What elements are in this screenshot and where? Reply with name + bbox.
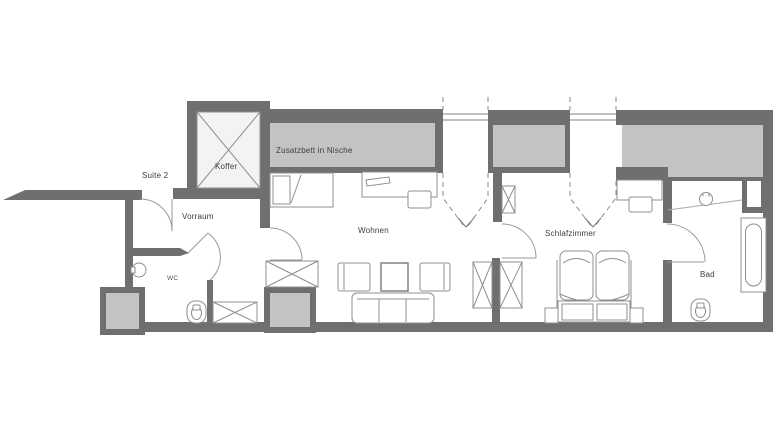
door-bad bbox=[667, 224, 705, 262]
armchair-left bbox=[338, 263, 370, 291]
room-label-koffer: Koffer bbox=[215, 162, 237, 171]
bay1-dash-left bbox=[443, 173, 464, 226]
washbasin-bad-symbol bbox=[700, 193, 713, 206]
shaft-wohnen-fill bbox=[270, 293, 310, 327]
bay1-tip bbox=[458, 218, 474, 227]
bay2-dash-right bbox=[595, 181, 616, 226]
cabinet-schlafzimmer-small bbox=[502, 186, 515, 213]
bay2-tip bbox=[585, 218, 601, 227]
toilet-wc-symbol bbox=[187, 301, 206, 323]
door-wc bbox=[187, 233, 220, 280]
door-entrance bbox=[140, 199, 172, 231]
washbasin-wc-symbol bbox=[131, 263, 146, 277]
floorplan-suite-2: Suite 2 Koffer Zusatzbett in Nische Vorr… bbox=[0, 0, 780, 439]
bathtub-symbol bbox=[741, 218, 766, 292]
wall-top-right-band bbox=[616, 110, 773, 125]
single-bed bbox=[270, 173, 333, 207]
room-label-bad: Bad bbox=[700, 270, 715, 279]
toilet-bad-symbol bbox=[691, 299, 710, 321]
nightstand-left bbox=[545, 308, 558, 323]
wall-koffer-top bbox=[187, 101, 268, 112]
room-label-vorraum: Vorraum bbox=[182, 212, 214, 221]
suite-label: Suite 2 bbox=[142, 171, 168, 180]
desk-chair-wohnen bbox=[408, 191, 431, 208]
wall-bad-top-L bbox=[616, 167, 668, 181]
wall-niche-top bbox=[262, 109, 443, 123]
window-living bbox=[443, 114, 488, 120]
room-label-schlafzimmer: Schlafzimmer bbox=[545, 229, 596, 238]
niche-gray-fill bbox=[270, 123, 435, 167]
double-bed bbox=[545, 251, 643, 323]
nightstand-right bbox=[630, 308, 643, 323]
wall-divide-stub-upper bbox=[493, 172, 502, 222]
wall-corridor bbox=[3, 190, 142, 200]
pier-gray-fill bbox=[493, 125, 565, 167]
wardrobe-divide-left bbox=[473, 262, 492, 308]
bad-niche-inner bbox=[747, 181, 761, 207]
wardrobe-wc-side bbox=[213, 302, 257, 323]
bay1-dash-above bbox=[443, 97, 488, 110]
single-bed-pillow bbox=[273, 176, 290, 204]
wardrobe-wohnen-left bbox=[266, 261, 318, 287]
bay1-dash-right bbox=[468, 173, 488, 226]
desk-schlafzimmer bbox=[617, 180, 662, 212]
room-label-wohnen: Wohnen bbox=[358, 226, 389, 235]
wall-vorraum-left bbox=[125, 198, 133, 287]
bay-tips bbox=[458, 218, 601, 227]
wardrobe-divide-right bbox=[500, 262, 522, 308]
window-bedroom bbox=[570, 114, 616, 120]
bay2-dash-above bbox=[570, 97, 616, 110]
annotation-zusatzbett: Zusatzbett in Nische bbox=[276, 146, 352, 155]
sofa bbox=[352, 293, 434, 323]
wall-niche-right bbox=[435, 123, 443, 173]
wall-divide-lower bbox=[492, 258, 500, 332]
floorplan-drawing bbox=[0, 0, 780, 439]
room-label-wc: WC bbox=[167, 274, 178, 283]
coffee-table bbox=[381, 263, 408, 291]
wall-koffer-bottom bbox=[173, 188, 270, 199]
door-vorraum-wohnen bbox=[270, 228, 302, 260]
wall-bad-left-upper bbox=[663, 181, 672, 223]
wall-wc-top bbox=[125, 248, 189, 256]
wall-wc-right bbox=[207, 280, 213, 323]
door-schlafzimmer bbox=[502, 224, 536, 258]
armchair-right bbox=[420, 263, 450, 291]
desk-chair-schlafzimmer bbox=[629, 197, 652, 212]
desk-wohnen bbox=[362, 172, 437, 208]
koffer-shaft bbox=[197, 112, 260, 188]
wall-bad-left-lower bbox=[663, 260, 672, 332]
shaft-left-fill bbox=[106, 293, 139, 329]
wall-koffer-left bbox=[187, 101, 197, 199]
bay2-dash-left bbox=[570, 173, 591, 226]
